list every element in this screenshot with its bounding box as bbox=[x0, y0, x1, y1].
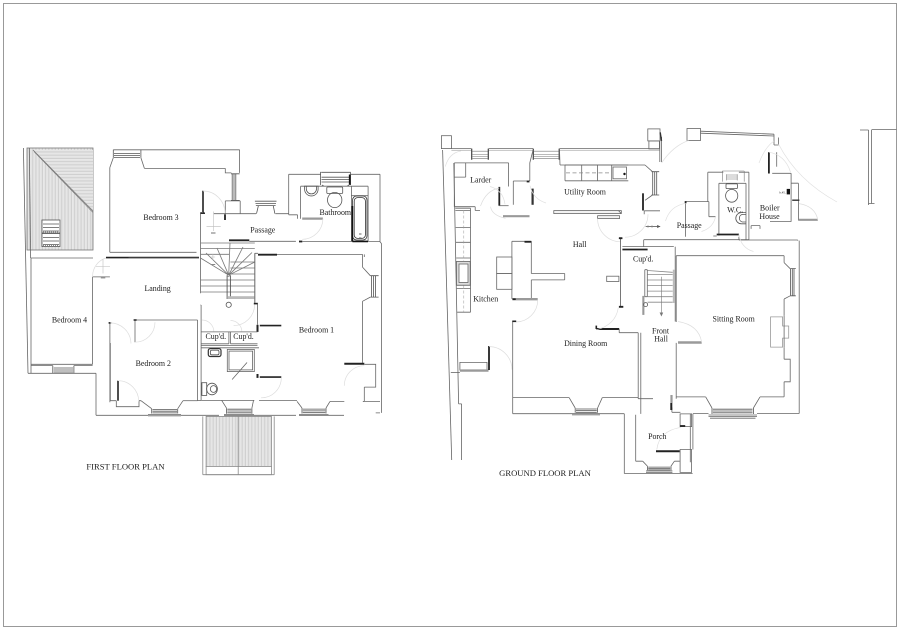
svg-text:Bedroom 4: Bedroom 4 bbox=[52, 316, 87, 325]
svg-text:Passage: Passage bbox=[250, 225, 275, 234]
svg-text:Sitting Room: Sitting Room bbox=[712, 315, 755, 324]
svg-text:Bedroom 3: Bedroom 3 bbox=[143, 213, 178, 222]
svg-text:Passage: Passage bbox=[677, 221, 702, 230]
svg-text:Cup'd.: Cup'd. bbox=[633, 254, 654, 263]
svg-text:Hall: Hall bbox=[654, 334, 668, 343]
svg-text:Landing: Landing bbox=[144, 284, 170, 293]
svg-text:Bathroom: Bathroom bbox=[320, 208, 352, 217]
svg-text:Cup'd.: Cup'd. bbox=[233, 332, 254, 341]
svg-text:b.45.: b.45. bbox=[779, 190, 786, 194]
svg-text:Utility Room: Utility Room bbox=[564, 187, 607, 196]
svg-text:House: House bbox=[759, 212, 780, 221]
svg-text:Cup'd.: Cup'd. bbox=[206, 332, 227, 341]
svg-text:GROUND FLOOR PLAN: GROUND FLOOR PLAN bbox=[499, 468, 591, 478]
svg-text:Bedroom 1: Bedroom 1 bbox=[299, 325, 334, 334]
svg-text:Larder: Larder bbox=[470, 176, 491, 185]
svg-text:Porch: Porch bbox=[648, 432, 666, 441]
svg-text:FIRST FLOOR PLAN: FIRST FLOOR PLAN bbox=[86, 462, 165, 472]
svg-text:Dining Room: Dining Room bbox=[564, 339, 608, 348]
svg-text:Kitchen: Kitchen bbox=[473, 295, 498, 304]
svg-text:W.C.: W.C. bbox=[727, 205, 743, 214]
svg-text:Hall: Hall bbox=[573, 240, 587, 249]
svg-text:Boiler: Boiler bbox=[760, 203, 780, 212]
svg-text:Bedroom 2: Bedroom 2 bbox=[136, 359, 171, 368]
